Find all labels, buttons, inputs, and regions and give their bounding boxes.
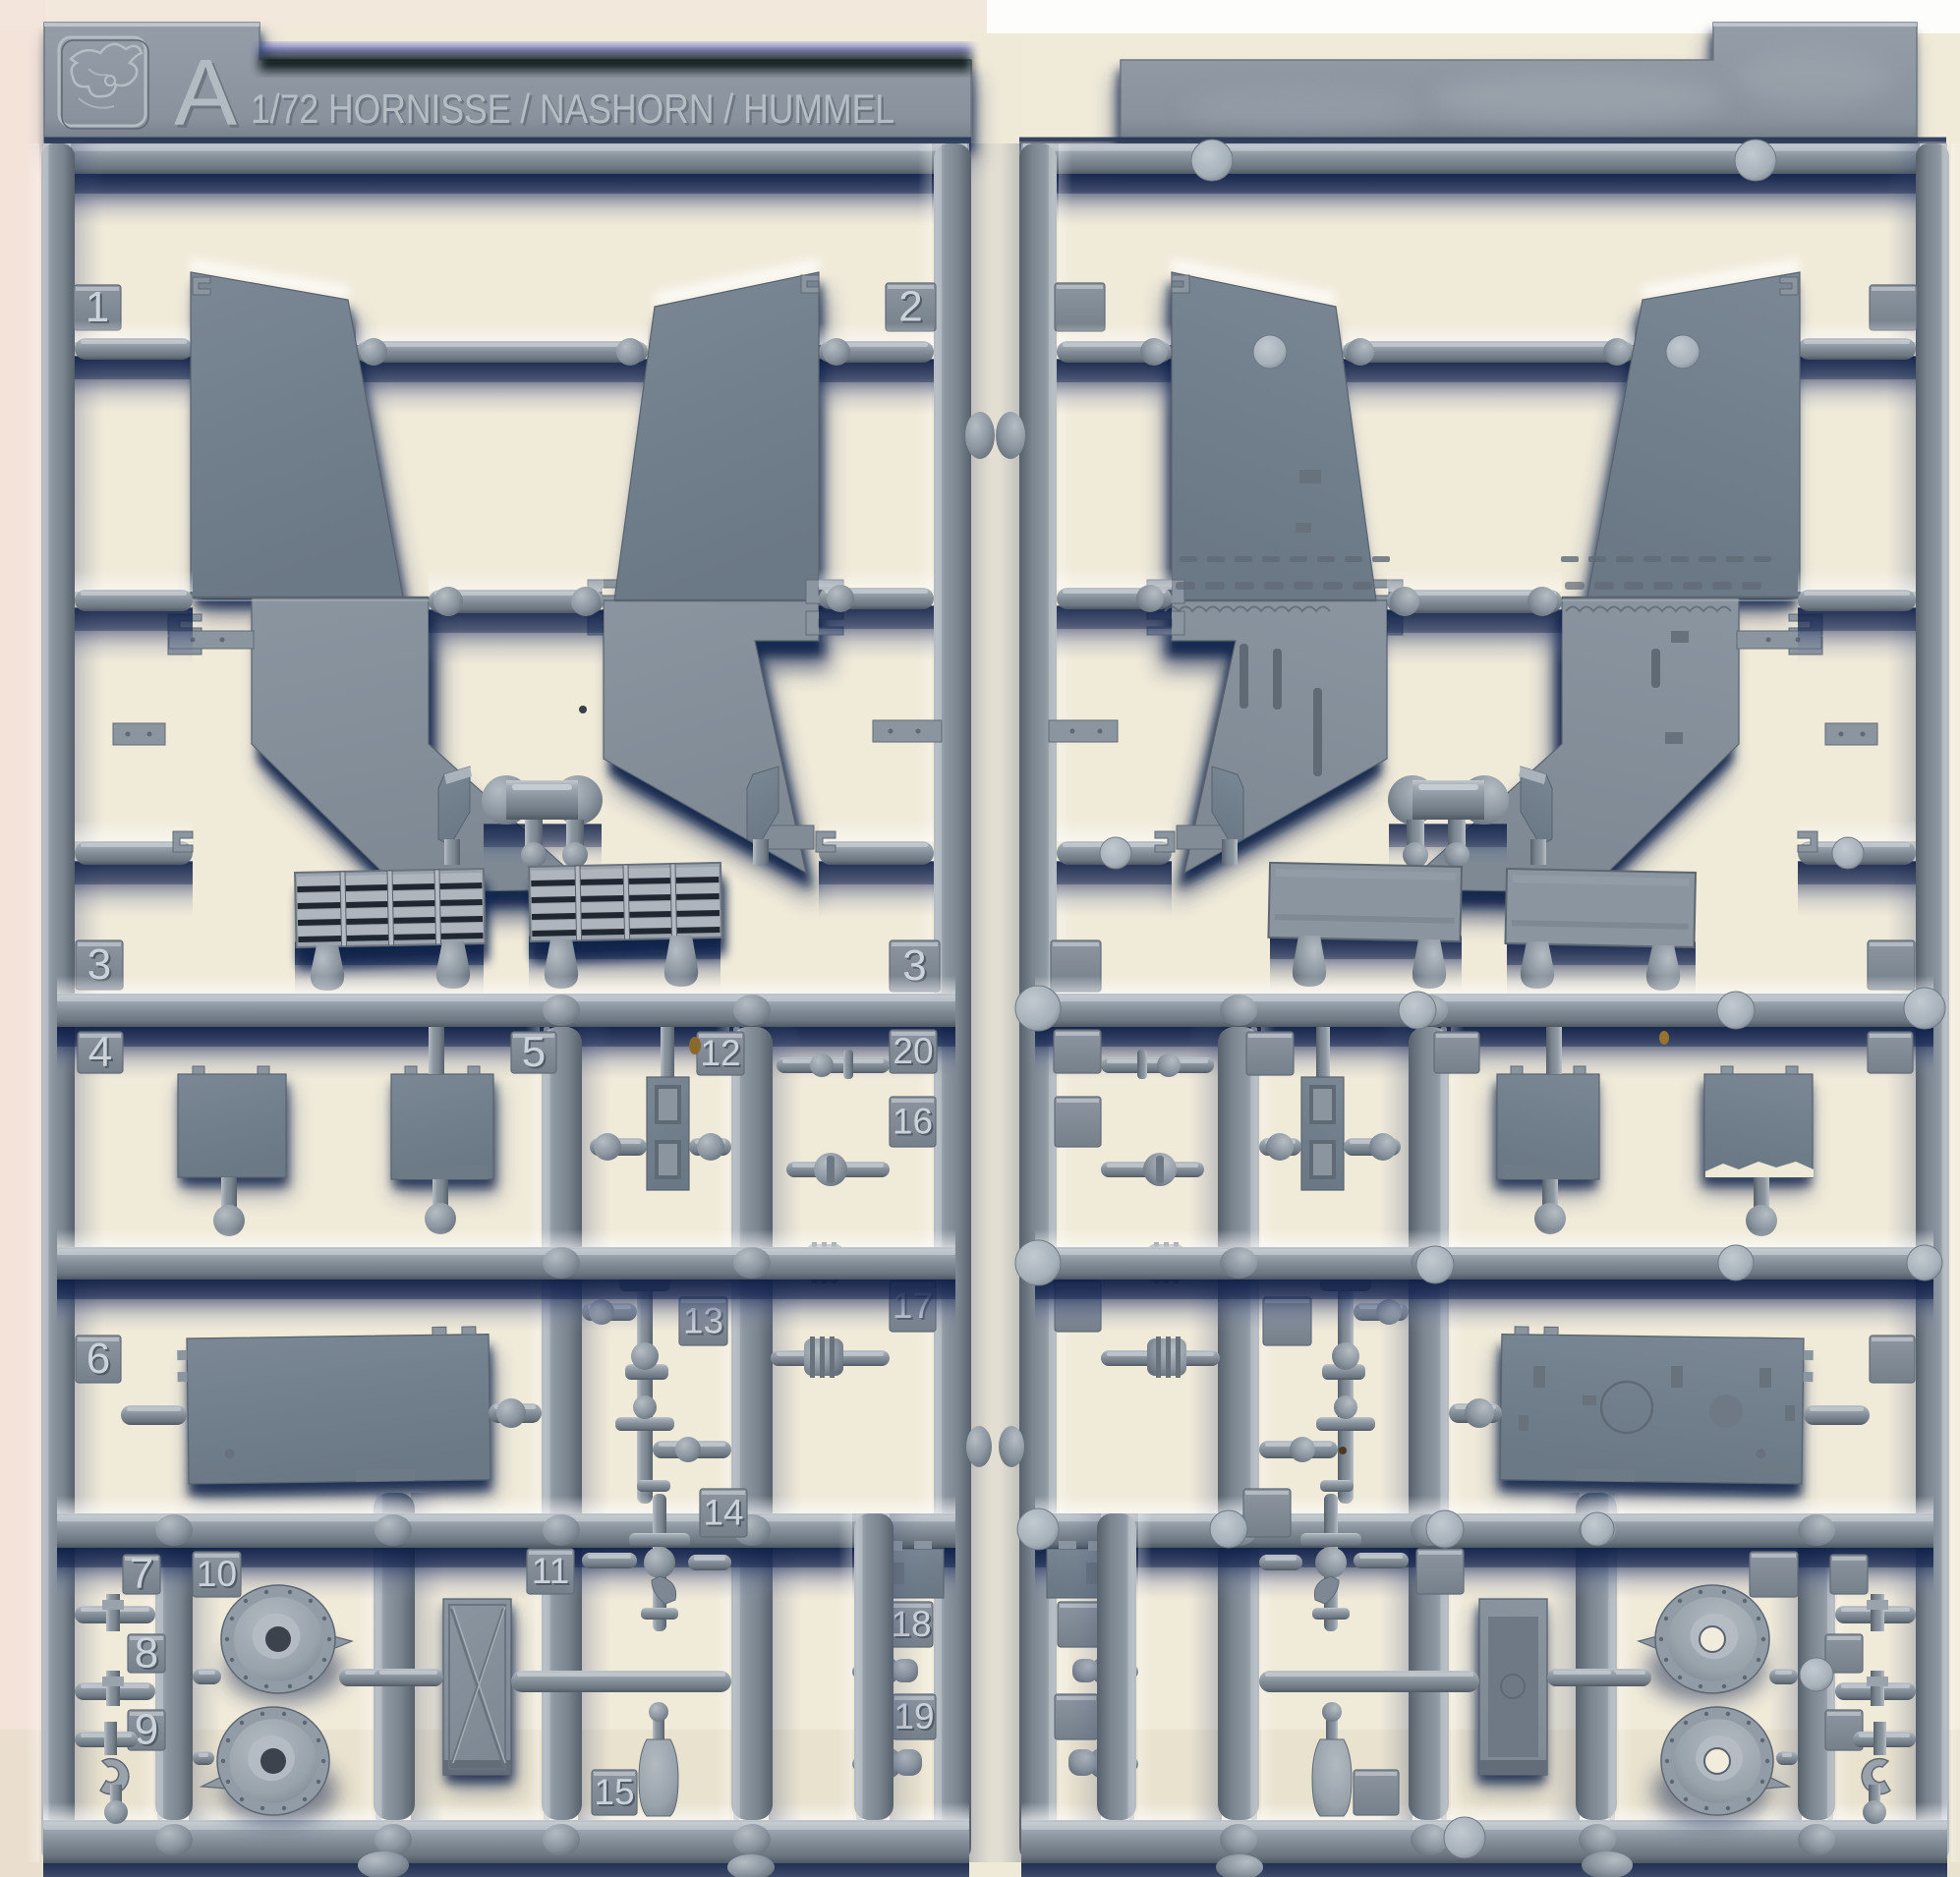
svg-text:9: 9 (135, 1706, 158, 1754)
svg-text:A: A (174, 40, 237, 145)
svg-text:6: 6 (86, 1335, 110, 1383)
svg-text:16: 16 (893, 1102, 933, 1142)
svg-text:14: 14 (703, 1493, 743, 1533)
svg-text:5: 5 (522, 1028, 546, 1076)
svg-text:12: 12 (700, 1033, 740, 1073)
svg-text:11: 11 (532, 1551, 569, 1591)
svg-text:15: 15 (594, 1772, 634, 1812)
svg-text:8: 8 (135, 1629, 158, 1678)
svg-text:10: 10 (197, 1554, 237, 1594)
svg-text:7: 7 (130, 1550, 153, 1598)
svg-text:4: 4 (88, 1028, 112, 1076)
svg-text:20: 20 (893, 1031, 933, 1071)
svg-text:1/72 HORNISSE / NASHORN / HUMM: 1/72 HORNISSE / NASHORN / HUMMEL (251, 85, 894, 132)
